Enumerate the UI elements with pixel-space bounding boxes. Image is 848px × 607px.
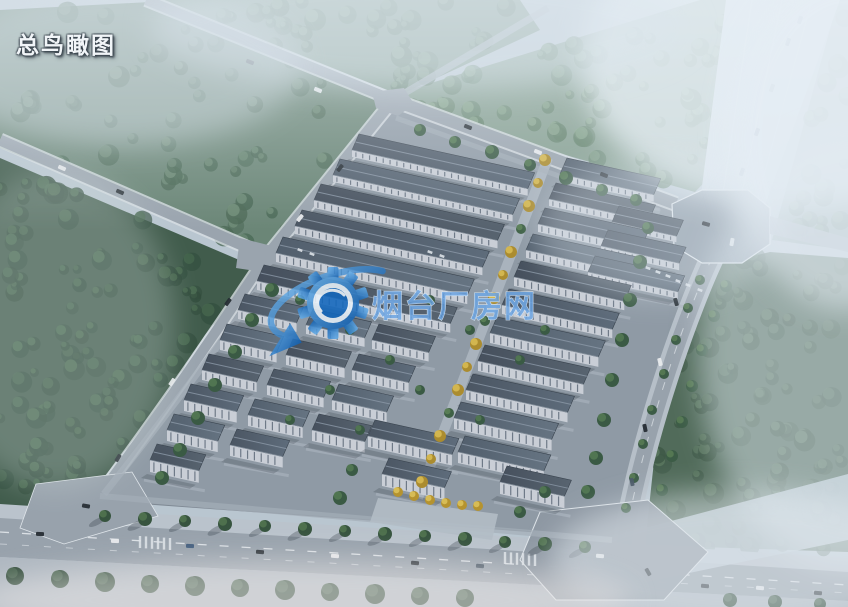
park-tree-highlight — [326, 385, 332, 391]
axis-tree-yellow-highlight — [435, 430, 442, 437]
car — [111, 539, 119, 543]
view-title-label: 总鸟瞰图 — [16, 26, 116, 60]
car — [331, 554, 339, 559]
park-tree-highlight — [598, 413, 606, 421]
boulevard-tree-highlight — [340, 525, 347, 532]
boulevard-tree-highlight — [219, 517, 227, 525]
park-tree-highlight — [266, 283, 274, 291]
axis-tree-yellow-highlight — [463, 362, 469, 368]
boulevard-tree-highlight — [260, 520, 267, 527]
park-tree-highlight — [515, 506, 522, 513]
park-tree-highlight — [466, 325, 472, 331]
boulevard-tree-highlight — [299, 522, 307, 530]
forest-tree-highlight — [691, 393, 697, 399]
park-tree-highlight — [616, 333, 624, 341]
entrance-tree-yellow-highlight — [410, 491, 416, 497]
entrance-tree-yellow-highlight — [394, 487, 400, 493]
park-tree-highlight — [516, 355, 522, 361]
boulevard-tree-highlight — [100, 510, 107, 517]
boulevard-tree-highlight — [500, 536, 507, 543]
aerial-scene-svg: 烟台厂房网 — [0, 0, 848, 607]
car — [256, 550, 264, 555]
entrance-tree-yellow-highlight — [458, 500, 464, 506]
roadside-tree-highlight — [684, 303, 690, 309]
boulevard-tree-highlight — [139, 512, 147, 520]
boulevard-tree-highlight — [7, 567, 18, 578]
forest-tree-highlight — [178, 333, 190, 345]
roadside-tree-highlight — [667, 450, 674, 457]
roadside-tree-highlight — [648, 405, 654, 411]
boulevard-tree-highlight — [459, 532, 467, 540]
boulevard-tree-highlight — [539, 537, 547, 545]
axis-tree-green-highlight — [445, 408, 451, 414]
axis-tree-yellow-highlight — [499, 270, 505, 276]
park-tree-highlight — [386, 355, 392, 361]
park-tree-highlight — [541, 325, 547, 331]
forest-tree-highlight — [170, 273, 178, 281]
entrance-tree-yellow-highlight — [474, 501, 480, 507]
axis-tree-yellow-highlight — [427, 454, 433, 460]
forest-tree-highlight — [202, 304, 215, 317]
park-tree-highlight — [209, 378, 217, 386]
roadside-tree-highlight — [657, 484, 664, 491]
park-tree-highlight — [334, 491, 342, 499]
park-tree-highlight — [174, 443, 182, 451]
aerial-rendering-stage: 烟台厂房网 总鸟瞰图 — [0, 0, 848, 607]
park-tree-highlight — [590, 451, 598, 459]
watermark-text: 烟台厂房网 — [372, 289, 537, 325]
park-tree-highlight — [246, 313, 254, 321]
forest-tree-highlight — [693, 470, 700, 477]
axis-tree-yellow-highlight — [471, 338, 478, 345]
forest-tree-highlight — [699, 434, 706, 441]
park-tree-highlight — [582, 485, 590, 493]
entrance-tree-yellow-highlight — [426, 495, 432, 501]
park-tree-highlight — [540, 486, 547, 493]
park-tree-highlight — [606, 373, 614, 381]
forest-tree-highlight — [191, 305, 197, 311]
park-tree-highlight — [347, 464, 354, 471]
boulevard-tree-highlight — [180, 515, 187, 522]
car — [36, 532, 44, 536]
roadside-tree-highlight — [660, 369, 666, 375]
car — [186, 544, 194, 548]
park-tree-highlight — [286, 415, 292, 421]
axis-tree-yellow-highlight — [453, 384, 460, 391]
boulevard-tree-highlight — [379, 527, 387, 535]
forest-tree-highlight — [183, 287, 188, 292]
park-tree-highlight — [156, 471, 164, 479]
roadside-tree-highlight — [639, 439, 645, 445]
entrance-tree-yellow-highlight — [442, 498, 448, 504]
roadside-tree-highlight — [677, 416, 684, 423]
park-tree-highlight — [476, 415, 482, 421]
axis-tree-yellow-highlight — [506, 246, 513, 253]
park-tree-highlight — [229, 345, 237, 353]
roadside-tree-highlight — [687, 380, 694, 387]
park-tree-highlight — [356, 425, 362, 431]
park-tree-highlight — [192, 411, 200, 419]
boulevard-tree-highlight — [420, 530, 427, 537]
forest-tree-highlight — [184, 253, 195, 264]
roadside-tree-highlight — [672, 335, 678, 341]
park-tree-highlight — [416, 385, 422, 391]
axis-tree-yellow-highlight — [417, 476, 424, 483]
